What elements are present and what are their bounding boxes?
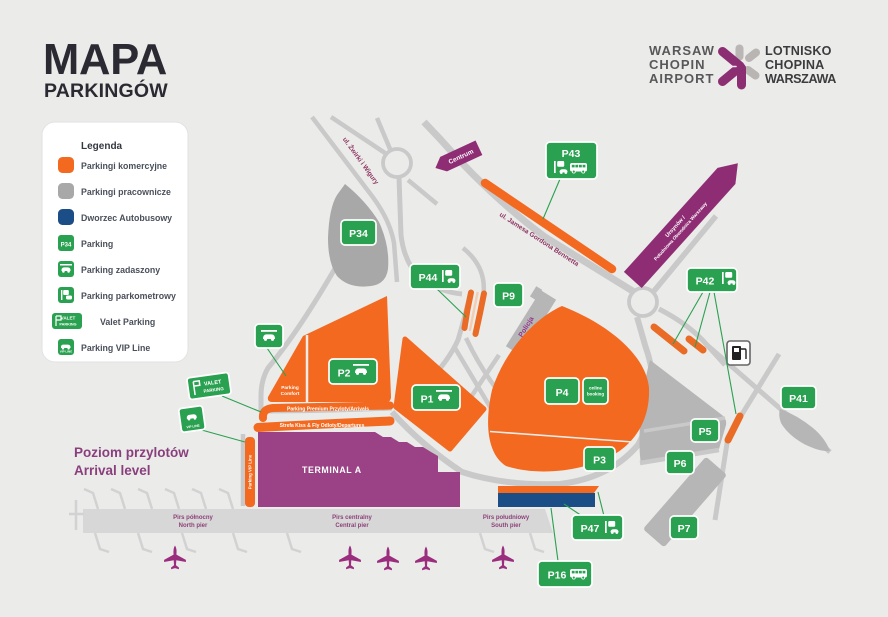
svg-text:Pirs północny: Pirs północny (173, 515, 213, 521)
svg-text:TERMINAL A: TERMINAL A (302, 465, 362, 475)
svg-text:P16: P16 (548, 570, 567, 582)
svg-text:Dworzec Autobusowy: Dworzec Autobusowy (81, 213, 172, 223)
svg-text:P34: P34 (61, 243, 72, 249)
svg-text:Parking parkometrowy: Parking parkometrowy (81, 291, 176, 301)
svg-text:Parking Premium Przyloty/Arriv: Parking Premium Przyloty/Arrivals (287, 407, 369, 413)
svg-text:Parking VIP Line: Parking VIP Line (248, 454, 253, 489)
svg-text:WARSAW: WARSAW (649, 43, 715, 58)
svg-text:online: online (589, 386, 602, 391)
svg-text:MAPA: MAPA (43, 36, 167, 84)
svg-text:Parking zadaszony: Parking zadaszony (81, 265, 160, 275)
svg-text:P3: P3 (593, 455, 606, 467)
svg-text:Parking: Parking (281, 385, 299, 391)
svg-text:North pier: North pier (179, 523, 208, 529)
svg-text:Central pier: Central pier (335, 523, 369, 529)
svg-text:P9: P9 (502, 291, 515, 303)
svg-text:South pier: South pier (491, 523, 521, 529)
svg-text:P44: P44 (419, 272, 438, 284)
svg-text:CHOPIN: CHOPIN (649, 57, 706, 72)
svg-text:PARKING: PARKING (59, 323, 76, 327)
svg-text:Arrival level: Arrival level (74, 463, 151, 478)
svg-text:Parkingi komercyjne: Parkingi komercyjne (81, 161, 167, 171)
svg-text:Poziom przylotów: Poziom przylotów (74, 445, 189, 460)
svg-text:P6: P6 (674, 458, 687, 470)
svg-text:Comfort: Comfort (281, 391, 300, 397)
svg-text:P7: P7 (678, 523, 691, 535)
svg-text:Strefa Kiss & Fly Odloty/Depar: Strefa Kiss & Fly Odloty/Departures (280, 423, 365, 429)
svg-text:CHOPINA: CHOPINA (765, 58, 824, 72)
svg-text:Parking: Parking (81, 239, 113, 249)
svg-text:P4: P4 (556, 387, 569, 399)
svg-text:VALET: VALET (61, 316, 76, 321)
svg-text:booking: booking (587, 392, 604, 397)
svg-text:Pirs południowy: Pirs południowy (483, 515, 530, 521)
svg-text:P47: P47 (581, 523, 600, 535)
svg-text:P41: P41 (789, 393, 808, 405)
svg-text:P42: P42 (696, 276, 715, 288)
svg-text:P5: P5 (699, 426, 712, 438)
svg-text:PARKINGÓW: PARKINGÓW (44, 78, 168, 102)
svg-text:Valet Parking: Valet Parking (100, 317, 155, 327)
svg-text:P2: P2 (338, 368, 351, 380)
svg-text:LOTNISKO: LOTNISKO (765, 44, 832, 58)
svg-text:Legenda: Legenda (81, 141, 123, 152)
svg-text:Parkingi pracownicze: Parkingi pracownicze (81, 187, 171, 197)
svg-text:P34: P34 (349, 228, 368, 240)
svg-text:P43: P43 (562, 148, 581, 160)
svg-text:WARSZAWA: WARSZAWA (765, 72, 836, 86)
svg-text:AIRPORT: AIRPORT (649, 71, 715, 86)
svg-text:Parking VIP Line: Parking VIP Line (81, 343, 150, 353)
svg-text:VIP LINE: VIP LINE (60, 350, 72, 354)
svg-text:Pirs centralny: Pirs centralny (332, 515, 372, 521)
svg-text:P1: P1 (421, 394, 434, 406)
